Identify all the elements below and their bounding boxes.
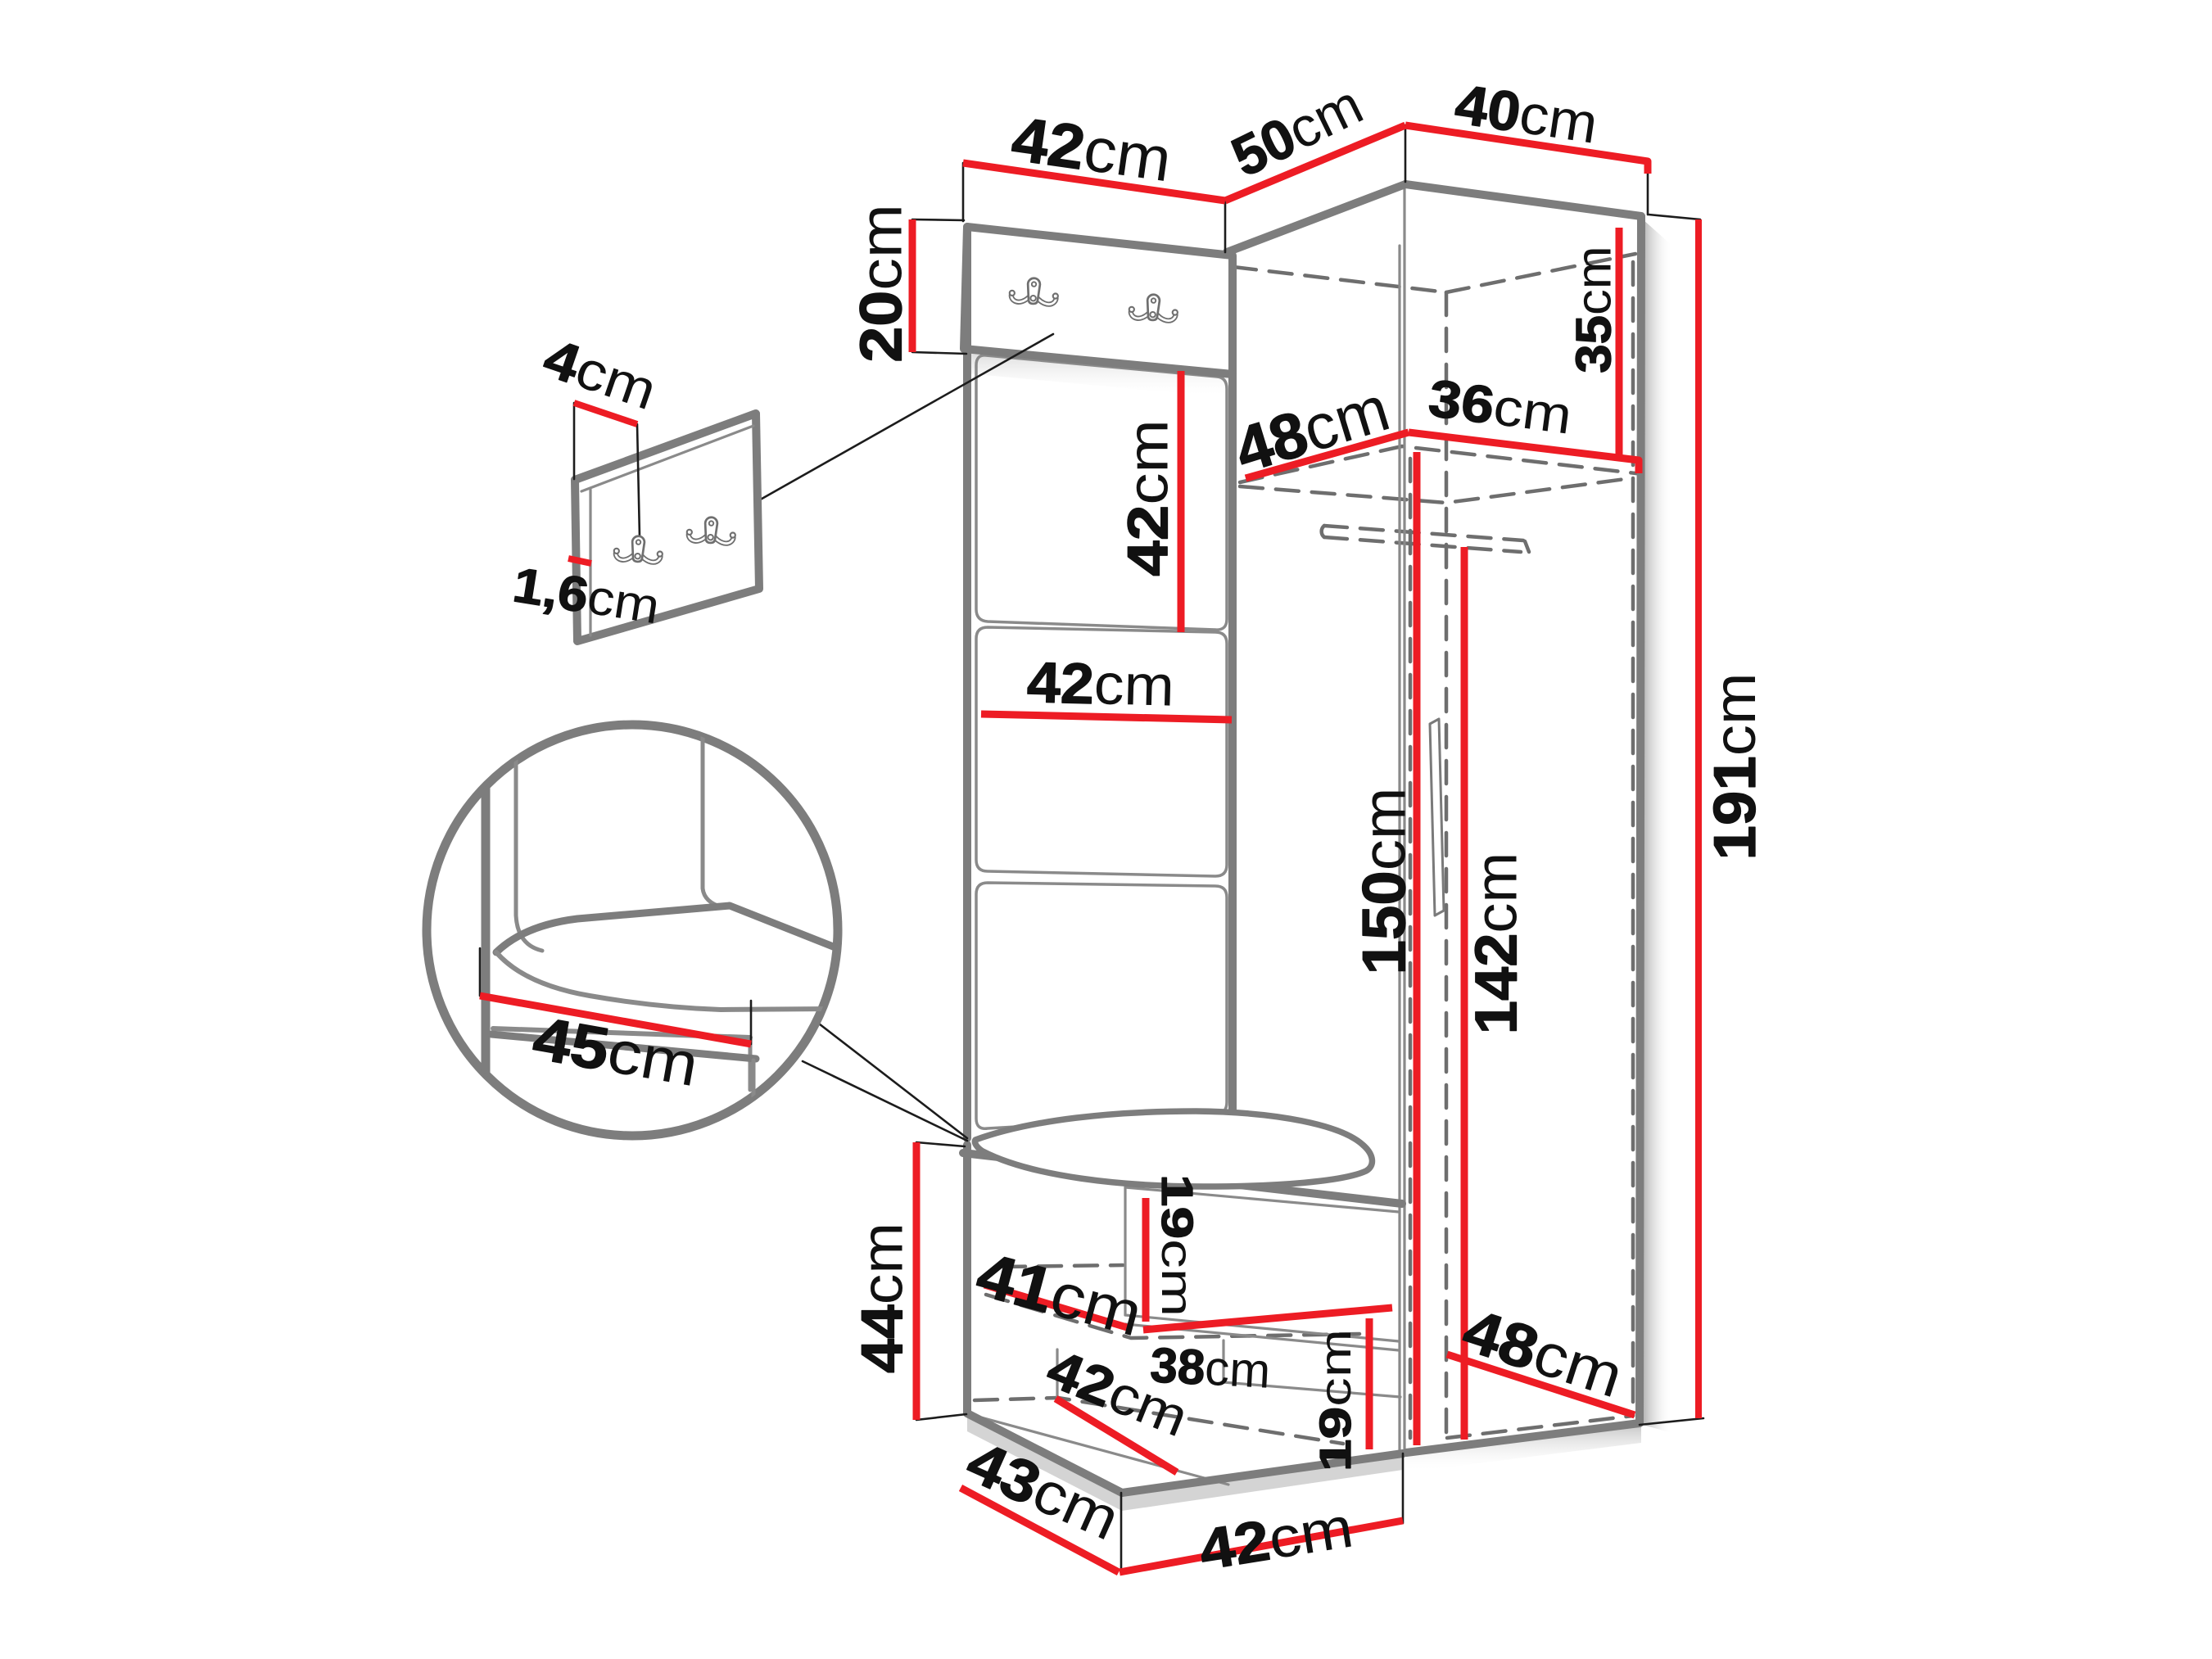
svg-text:42cm: 42cm bbox=[1026, 651, 1175, 719]
svg-text:48cm: 48cm bbox=[1227, 372, 1397, 486]
svg-text:150cm: 150cm bbox=[1350, 788, 1418, 975]
svg-text:42cm: 42cm bbox=[1195, 1494, 1357, 1581]
svg-text:42cm: 42cm bbox=[1007, 103, 1175, 195]
svg-text:20cm: 20cm bbox=[848, 204, 915, 363]
svg-text:191cm: 191cm bbox=[1702, 672, 1768, 860]
svg-text:142cm: 142cm bbox=[1463, 852, 1529, 1035]
svg-text:41cm: 41cm bbox=[970, 1239, 1149, 1349]
svg-text:19cm: 19cm bbox=[1152, 1174, 1201, 1317]
svg-text:40cm: 40cm bbox=[1451, 72, 1602, 155]
svg-text:48cm: 48cm bbox=[1455, 1296, 1631, 1410]
svg-text:42cm: 42cm bbox=[1115, 419, 1179, 576]
svg-text:4cm: 4cm bbox=[536, 328, 664, 422]
svg-text:35cm: 35cm bbox=[1567, 246, 1622, 373]
svg-text:19cm: 19cm bbox=[1311, 1329, 1360, 1471]
svg-text:44cm: 44cm bbox=[849, 1223, 915, 1373]
